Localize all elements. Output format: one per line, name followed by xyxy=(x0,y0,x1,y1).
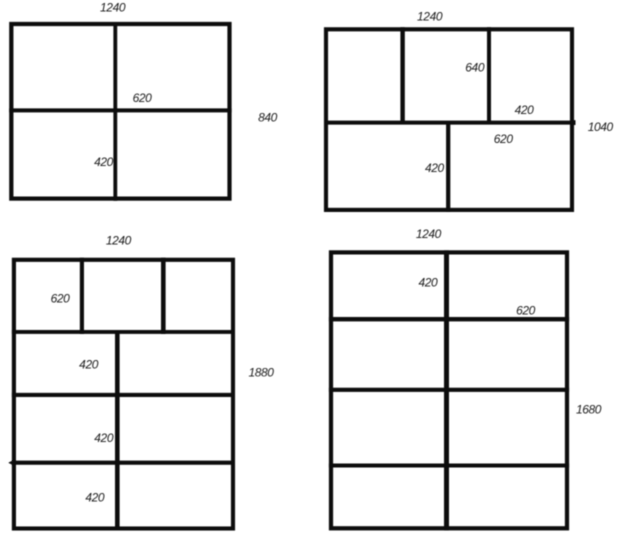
svg-text:1680: 1680 xyxy=(576,402,602,416)
svg-text:420: 420 xyxy=(79,357,99,371)
svg-text:420: 420 xyxy=(418,276,438,290)
svg-text:1240: 1240 xyxy=(416,227,442,241)
svg-text:420: 420 xyxy=(425,161,445,175)
svg-text:620: 620 xyxy=(516,303,536,317)
svg-text:420: 420 xyxy=(85,490,105,504)
svg-text:1240: 1240 xyxy=(417,9,443,23)
svg-text:420: 420 xyxy=(515,103,535,117)
svg-text:1240: 1240 xyxy=(106,233,132,247)
svg-text:840: 840 xyxy=(258,110,278,124)
svg-text:620: 620 xyxy=(51,291,71,305)
svg-text:640: 640 xyxy=(465,61,485,75)
svg-text:620: 620 xyxy=(133,91,153,105)
svg-text:1880: 1880 xyxy=(248,366,274,380)
svg-text:420: 420 xyxy=(94,431,114,445)
svg-text:1240: 1240 xyxy=(100,1,126,15)
svg-text:1040: 1040 xyxy=(588,120,614,134)
svg-text:620: 620 xyxy=(494,132,514,146)
svg-text:420: 420 xyxy=(94,155,114,169)
